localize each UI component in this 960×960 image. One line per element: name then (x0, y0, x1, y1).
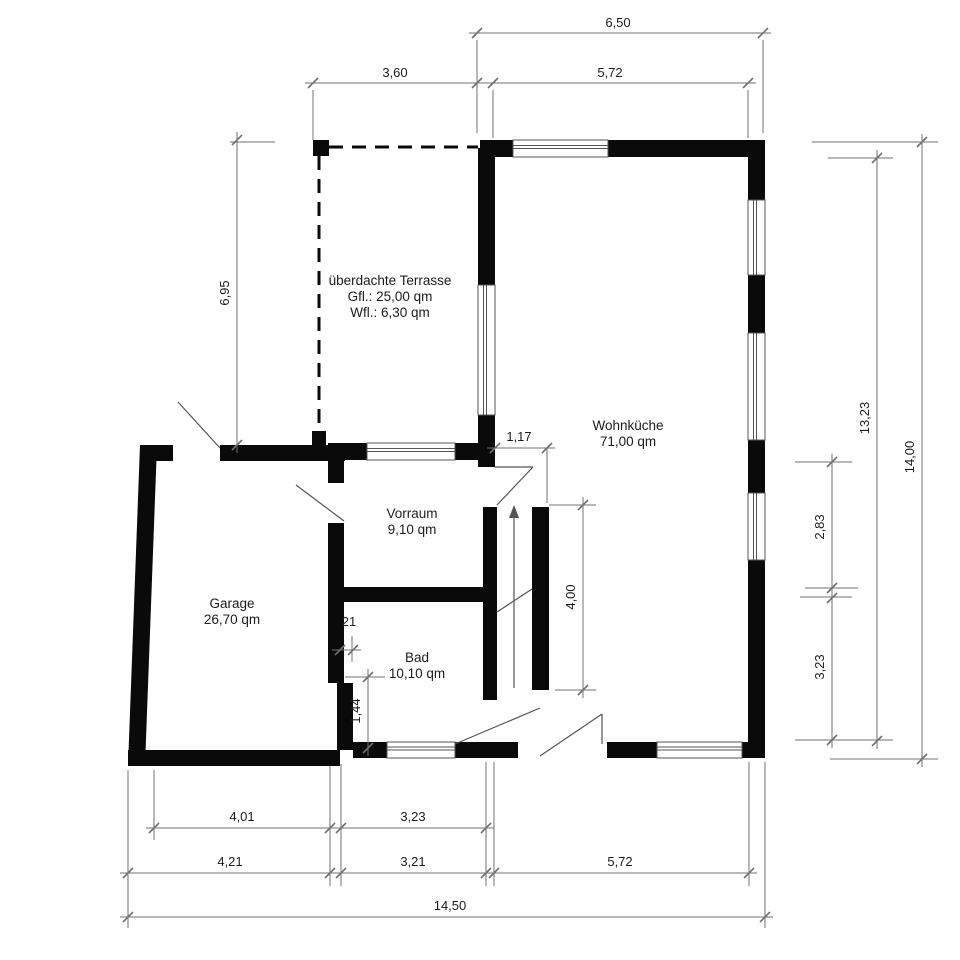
wall-segment (532, 507, 549, 690)
window (367, 443, 455, 460)
dimension-label: 6,50 (605, 15, 630, 30)
wall-segment (608, 140, 765, 157)
dimension-label: 3,23 (812, 654, 827, 679)
wall-segment (483, 507, 497, 700)
dimension-label: 21 (342, 614, 356, 629)
wall-segment (748, 560, 765, 758)
wall-segment (478, 148, 495, 285)
dimension-label: 13,23 (857, 402, 872, 435)
room-label-line: 10,10 qm (389, 666, 445, 681)
dimension-label: 5,72 (607, 854, 632, 869)
dimension-label: 5,72 (597, 65, 622, 80)
floor-plan: 6,503,605,726,9513,2314,002,833,231,174,… (0, 0, 960, 960)
window (748, 493, 765, 560)
room-label-line: Bad (405, 650, 429, 665)
room-label-line: überdachte Terrasse (329, 273, 452, 288)
wall-segment (328, 443, 367, 460)
wall-segment (312, 431, 326, 445)
room-label-line: Garage (209, 596, 254, 611)
room-label-wohnkueche: Wohnküche71,00 qm (592, 418, 663, 449)
window (513, 140, 608, 157)
wall-segment (478, 415, 495, 467)
room-label-line: 71,00 qm (600, 434, 656, 449)
dimension-label: 1,17 (506, 429, 531, 444)
room-label-line: Wfl.: 6,30 qm (350, 305, 430, 320)
window (748, 333, 765, 440)
window (657, 742, 742, 758)
dimension-label: 6,95 (217, 280, 232, 305)
room-label-line: 26,70 qm (204, 612, 260, 627)
room-label-garage: Garage26,70 qm (204, 596, 260, 627)
wall-segment (607, 742, 657, 758)
wall-segment (748, 275, 765, 333)
dimension-label: 4,21 (217, 854, 242, 869)
window (478, 285, 495, 415)
wall-segment (748, 440, 765, 493)
dimension-label: 14,50 (434, 898, 467, 913)
room-label-line: Gfl.: 25,00 qm (348, 289, 433, 304)
wall-segment (455, 742, 518, 758)
wall-segment (313, 140, 329, 156)
dimension-label: 3,23 (400, 809, 425, 824)
wall-segment (748, 140, 765, 200)
dimension-label: 4,01 (229, 809, 254, 824)
dimension-label: 1,44 (348, 698, 363, 723)
room-label-line: Vorraum (386, 506, 437, 521)
wall-segment (220, 445, 345, 461)
room-label-line: Wohnküche (592, 418, 663, 433)
dimension-label: 2,83 (812, 514, 827, 539)
room-label-line: 9,10 qm (388, 522, 437, 537)
dimension-label: 14,00 (902, 441, 917, 474)
wall-segment (353, 742, 387, 758)
dimension-label: 3,60 (382, 65, 407, 80)
wall-segment (328, 523, 344, 683)
window (748, 200, 765, 275)
dimension-label: 4,00 (563, 584, 578, 609)
wall-segment (128, 750, 340, 766)
wall-segment (742, 742, 765, 758)
floor-plan-canvas: 6,503,605,726,9513,2314,002,833,231,174,… (0, 0, 960, 960)
wall-segment (328, 461, 344, 483)
wall-segment (330, 587, 495, 602)
window (387, 742, 455, 758)
dimension-label: 3,21 (400, 854, 425, 869)
room-label-vorraum: Vorraum9,10 qm (386, 506, 437, 537)
